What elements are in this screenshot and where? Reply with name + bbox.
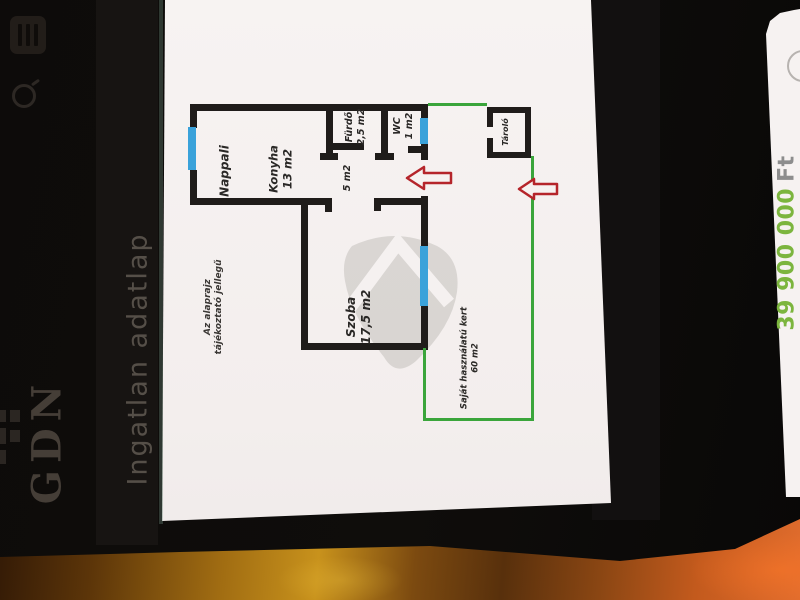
- menu-bar: [18, 24, 22, 46]
- price-value: 39 900 000: [775, 188, 800, 331]
- price-label: 39 900 000Ft: [775, 155, 800, 330]
- search-icon[interactable]: [12, 80, 42, 110]
- room-label-szoba: Szoba 17,5 m2: [344, 290, 374, 345]
- page-title: Ingatlan adatlap: [123, 232, 154, 485]
- room-label-tarolo: Tároló: [501, 118, 511, 146]
- room-label-wc: WC 1 m2: [392, 113, 416, 139]
- plan-disclaimer: Az alaprajz tájékoztató jellegű: [203, 260, 226, 355]
- price-currency: Ft: [775, 155, 800, 188]
- screen-edge-highlight: [159, 0, 163, 524]
- garden-label: Saját használatú kert 60 m2: [459, 307, 480, 409]
- search-handle: [31, 79, 40, 87]
- room-label-hall: 5 m2: [342, 165, 354, 191]
- room-label-nappali: Nappali: [218, 145, 233, 197]
- phone-photo-scene: GDN Ingatlan adatlap: [0, 0, 800, 600]
- qr-code-icon: [0, 408, 22, 468]
- menu-bar: [34, 24, 38, 46]
- menu-icon[interactable]: [10, 16, 46, 54]
- search-lens: [12, 84, 36, 108]
- room-label-furdo: Fürdő 2,5 m2: [344, 109, 368, 146]
- brand-logo: GDN: [24, 378, 71, 504]
- room-label-konyha: Konyha 13 m2: [267, 145, 296, 193]
- menu-bar: [26, 24, 30, 46]
